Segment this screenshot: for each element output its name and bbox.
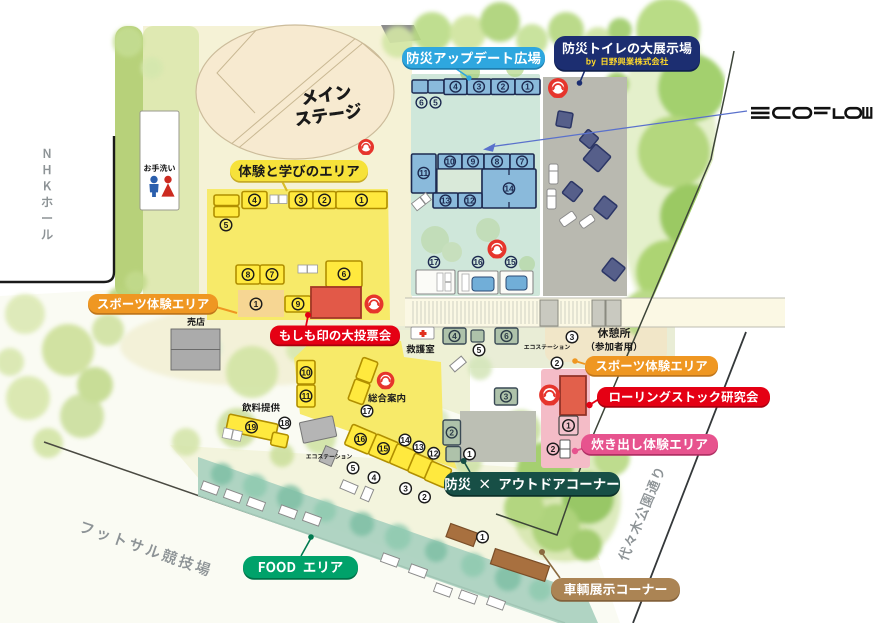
svg-text:9: 9 xyxy=(471,157,476,167)
svg-text:17: 17 xyxy=(429,257,439,267)
svg-text:1: 1 xyxy=(254,299,259,309)
svg-text:15: 15 xyxy=(506,257,516,267)
svg-text:10: 10 xyxy=(445,157,455,167)
svg-text:2: 2 xyxy=(322,195,327,205)
svg-text:3: 3 xyxy=(570,332,575,342)
svg-text:18: 18 xyxy=(280,418,290,428)
svg-text:7: 7 xyxy=(270,270,275,280)
svg-text:10: 10 xyxy=(301,368,311,378)
svg-text:2: 2 xyxy=(449,428,454,438)
svg-text:2: 2 xyxy=(501,82,506,92)
svg-text:5: 5 xyxy=(433,98,438,108)
svg-text:12: 12 xyxy=(429,448,439,458)
svg-text:4: 4 xyxy=(452,331,457,341)
svg-text:2: 2 xyxy=(555,358,560,368)
svg-text:1: 1 xyxy=(480,532,485,542)
svg-text:14: 14 xyxy=(504,184,514,194)
svg-text:3: 3 xyxy=(403,484,408,494)
svg-text:2: 2 xyxy=(551,444,556,454)
svg-text:5: 5 xyxy=(351,463,356,473)
svg-text:16: 16 xyxy=(356,434,366,444)
svg-text:13: 13 xyxy=(441,196,451,206)
svg-text:4: 4 xyxy=(372,473,377,483)
svg-text:3: 3 xyxy=(299,195,304,205)
svg-text:9: 9 xyxy=(296,299,301,309)
svg-text:16: 16 xyxy=(473,257,483,267)
svg-text:2: 2 xyxy=(422,492,427,502)
svg-text:8: 8 xyxy=(495,157,500,167)
svg-text:8: 8 xyxy=(246,270,251,280)
svg-text:11: 11 xyxy=(302,391,311,401)
svg-text:5: 5 xyxy=(224,220,229,230)
svg-text:14: 14 xyxy=(400,435,410,445)
svg-text:4: 4 xyxy=(453,82,458,92)
svg-text:13: 13 xyxy=(414,442,424,452)
svg-text:6: 6 xyxy=(342,269,347,279)
svg-text:12: 12 xyxy=(465,196,475,206)
svg-text:15: 15 xyxy=(379,444,389,454)
svg-text:7: 7 xyxy=(520,157,525,167)
svg-text:1: 1 xyxy=(525,82,530,92)
svg-text:4: 4 xyxy=(252,195,257,205)
svg-text:1: 1 xyxy=(566,421,571,431)
svg-text:11: 11 xyxy=(419,168,428,178)
svg-text:17: 17 xyxy=(362,406,372,416)
svg-text:1: 1 xyxy=(467,449,472,459)
svg-text:5: 5 xyxy=(477,345,482,355)
svg-text:19: 19 xyxy=(247,422,257,432)
svg-text:1: 1 xyxy=(359,195,364,205)
svg-text:3: 3 xyxy=(504,392,509,402)
svg-text:3: 3 xyxy=(477,82,482,92)
svg-text:6: 6 xyxy=(504,331,509,341)
svg-text:6: 6 xyxy=(419,98,424,108)
